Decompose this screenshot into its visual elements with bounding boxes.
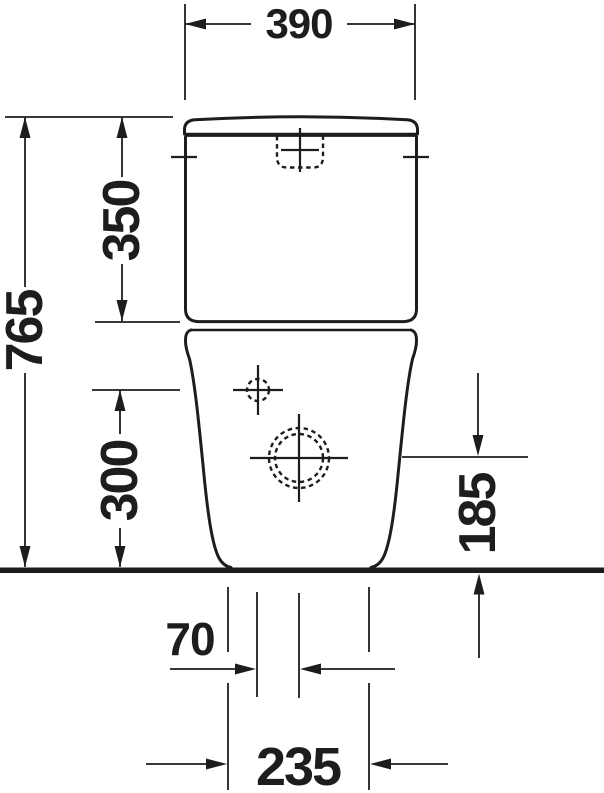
dim-label-outlet-height: 185 [449,473,507,555]
water-inlet-marker [233,365,283,415]
dim-tank-top-width: 390 [185,0,415,100]
toilet-dimension-drawing: 390 765 350 300 [0,0,604,793]
arrowhead-right [235,664,256,675]
dim-outlet-height: 185 [402,373,528,658]
arrowhead-up [20,117,31,138]
arrowhead-right [394,19,415,30]
arrowhead-down [115,546,126,567]
dim-label-inlet-outlet-offset: 70 [165,613,214,665]
dim-label-cistern-height: 350 [93,181,151,262]
bowl [186,330,417,568]
dim-inlet-height: 300 [91,390,180,567]
dim-cistern-height: 350 [93,117,180,322]
arrowhead-up [115,390,126,411]
waste-outlet-marker [250,414,348,502]
arrowhead-left [370,759,391,770]
arrowhead-left [185,19,206,30]
arrowhead-down [117,300,128,321]
arrowhead-left [300,664,321,675]
dim-inlet-outlet-offset: 70 [165,592,395,698]
bowl-left-side [186,330,232,568]
arrowhead-down [20,546,31,567]
dim-label-tank-top-width: 390 [265,0,332,47]
arrowhead-right [206,759,227,770]
drawing-canvas: 390 765 350 300 [0,0,604,793]
bowl-right-side [371,330,417,568]
floor-line [0,568,604,574]
dim-label-base-width: 235 [256,737,341,793]
arrowhead-up [474,574,485,595]
dim-label-inlet-height: 300 [91,441,149,522]
dim-label-total-height: 765 [0,290,54,372]
arrowhead-down [473,435,484,456]
arrowhead-up [117,117,128,138]
